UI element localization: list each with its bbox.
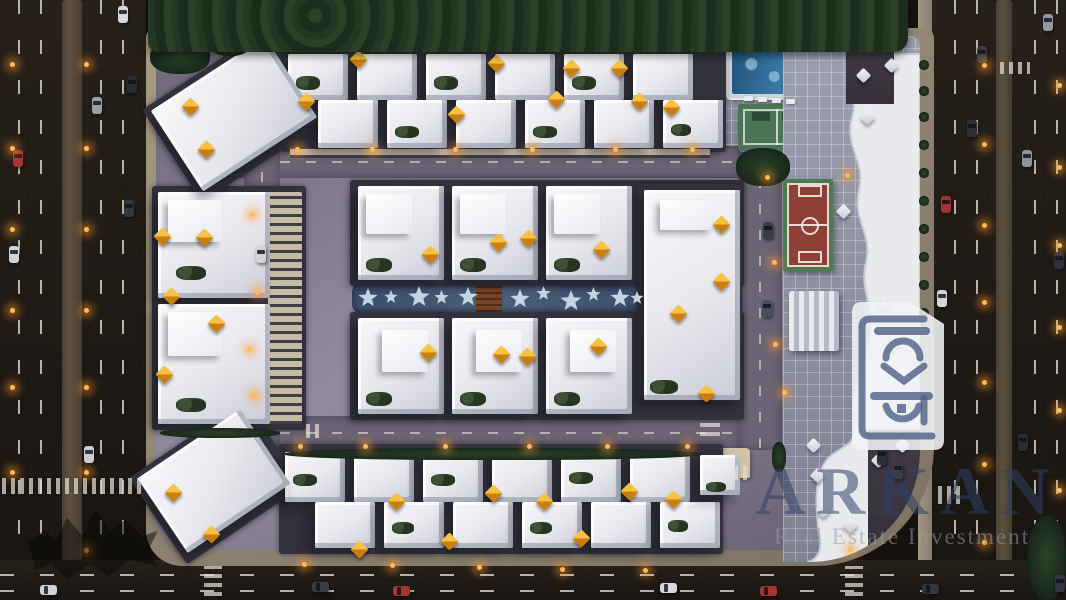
street-light [84, 470, 89, 475]
car-windshield [44, 586, 48, 594]
tree-bush [736, 148, 790, 186]
car [40, 585, 57, 595]
tennis-court [738, 104, 783, 150]
roof-garden [572, 76, 596, 90]
street-light [772, 260, 777, 265]
car [312, 582, 329, 592]
street-light [250, 212, 255, 217]
street-light [84, 308, 89, 313]
street-light [685, 444, 690, 449]
crosswalk [204, 566, 222, 596]
car-windshield [938, 294, 946, 298]
street-light [982, 223, 987, 228]
street-light [1057, 325, 1062, 330]
car-windshield [14, 154, 22, 158]
tree-bush [160, 428, 280, 438]
car-windshield [119, 10, 127, 14]
street-light [1057, 83, 1062, 88]
car-windshield [128, 80, 136, 84]
roof-garden [530, 522, 552, 534]
roof-garden [395, 126, 419, 138]
car-windshield [764, 226, 772, 230]
villa-roof-block [554, 194, 600, 234]
car-windshield [93, 101, 101, 105]
car-windshield [664, 584, 668, 592]
futsal-center-circle [801, 217, 819, 235]
street-light [255, 290, 260, 295]
roof-garden [366, 258, 392, 272]
masterplan-render: ARKAN Real Estate Investment [0, 0, 1066, 600]
car [763, 222, 773, 239]
street-light [252, 393, 257, 398]
street-light [1057, 243, 1062, 248]
roof-garden [554, 258, 580, 272]
car [127, 76, 137, 93]
street-light [453, 147, 458, 152]
street-light [690, 147, 695, 152]
road-median [62, 0, 82, 600]
lane-marking [100, 0, 102, 600]
tennis-mat [752, 112, 770, 121]
roof-garden [533, 126, 557, 138]
street-light [295, 147, 300, 152]
car-windshield [1019, 438, 1027, 442]
car [1054, 252, 1064, 269]
street-light [443, 444, 448, 449]
pool-lounger [744, 96, 753, 101]
street-light [363, 444, 368, 449]
street-light [527, 444, 532, 449]
watermark-brand: ARKAN [756, 452, 1060, 531]
street-light [643, 568, 648, 573]
street-light [560, 567, 565, 572]
lane-marking [228, 432, 740, 434]
roof-garden [671, 124, 691, 136]
car [92, 97, 102, 114]
street-light [530, 147, 535, 152]
villa-building [594, 100, 654, 148]
car [13, 150, 23, 167]
pool-lounger [786, 99, 795, 104]
villa-roof-block [660, 200, 712, 230]
street-light [782, 390, 787, 395]
roof-garden [706, 482, 726, 492]
pool-lounger [772, 98, 781, 103]
villa-building [453, 502, 513, 548]
tree-bush [919, 196, 929, 206]
roof-garden [392, 522, 414, 534]
street-light [982, 300, 987, 305]
crosswalk [734, 466, 752, 480]
car-windshield [968, 124, 976, 128]
villa-building [633, 54, 693, 100]
tree-bush [919, 86, 929, 96]
lane-marking [40, 0, 42, 600]
villa-building [591, 502, 651, 548]
car-windshield [397, 587, 401, 595]
car [660, 583, 677, 593]
futsal-court [783, 179, 833, 271]
car [256, 246, 266, 263]
street-light [477, 565, 482, 570]
street-light [10, 62, 15, 67]
car-windshield [316, 583, 320, 591]
swimming-pool [728, 44, 783, 98]
street-light [982, 142, 987, 147]
roof-garden [293, 474, 317, 486]
car [1018, 434, 1028, 451]
tree-bush [919, 224, 929, 234]
car-windshield [1055, 256, 1063, 260]
villa-roof-block [460, 194, 506, 234]
villa-building [456, 100, 516, 148]
car [977, 46, 987, 63]
street-light [765, 175, 770, 180]
street-light [1057, 165, 1062, 170]
crosswalk [845, 566, 863, 596]
car [1055, 575, 1065, 592]
pool-lounger [758, 97, 767, 102]
street-light [370, 147, 375, 152]
villa-building [315, 502, 375, 548]
car [762, 300, 772, 317]
street-light [390, 563, 395, 568]
street-light [10, 470, 15, 475]
roof-garden [431, 474, 455, 486]
villa-building [318, 100, 378, 148]
car-windshield [942, 200, 950, 204]
roof-garden [460, 392, 486, 406]
building-facade [268, 192, 302, 424]
pergola-seating [789, 291, 839, 351]
lane-marking [0, 574, 1066, 576]
car-windshield [1023, 154, 1031, 158]
tree-bush [919, 60, 929, 70]
crosswalk [306, 424, 324, 438]
street-light [10, 227, 15, 232]
road-left [0, 0, 146, 600]
roof-garden [460, 258, 486, 272]
tree-bush [919, 168, 929, 178]
street-light [84, 385, 89, 390]
street-light [982, 380, 987, 385]
street-light [773, 342, 778, 347]
street-light [247, 347, 252, 352]
crosswalk [2, 478, 144, 494]
tree-bush [919, 112, 929, 122]
street-light [10, 146, 15, 151]
crosswalk [700, 420, 720, 436]
street-light [1057, 408, 1062, 413]
roof-garden [176, 398, 206, 412]
car-windshield [764, 587, 768, 595]
tree-band-top [148, 0, 908, 52]
roof-garden [650, 380, 678, 394]
crosswalk [1000, 62, 1030, 74]
roof-garden [668, 520, 688, 532]
street-light [302, 562, 307, 567]
street-light [84, 146, 89, 151]
futsal-goal-box [798, 185, 822, 197]
car [124, 200, 134, 217]
roof-garden [296, 76, 320, 90]
villa-building [630, 452, 690, 502]
roof-garden [366, 392, 392, 406]
street-light [613, 147, 618, 152]
car-windshield [978, 50, 986, 54]
villa-roof-block [168, 200, 222, 242]
tree-bush [285, 448, 701, 460]
roof-garden [176, 266, 206, 280]
villa-building [426, 54, 486, 100]
internal-road-right [738, 152, 782, 450]
car [967, 120, 977, 137]
watermark-tagline: Real Estate Investment [774, 524, 1030, 550]
car [760, 586, 777, 596]
car [1022, 150, 1032, 167]
car [84, 446, 94, 463]
car [9, 246, 19, 263]
car-windshield [763, 304, 771, 308]
street-light [10, 308, 15, 313]
arkan-logo-emblem [850, 300, 946, 452]
car [941, 196, 951, 213]
car [1043, 14, 1053, 31]
street-light [84, 62, 89, 67]
street-light [605, 444, 610, 449]
lane-marking [18, 0, 20, 600]
tree-bush [919, 280, 929, 290]
car-windshield [10, 250, 18, 254]
villa-building [387, 100, 447, 148]
car-windshield [257, 250, 265, 254]
car-windshield [1056, 579, 1064, 583]
building-facade [290, 148, 710, 158]
street-light [298, 444, 303, 449]
car [393, 586, 410, 596]
street-light [10, 385, 15, 390]
tree-bush [919, 252, 929, 262]
roof-garden [554, 392, 580, 406]
tennis-net-line [776, 109, 778, 145]
car-windshield [125, 204, 133, 208]
villa-roof-block [366, 194, 412, 234]
roof-garden [569, 472, 593, 484]
street-light [845, 173, 850, 178]
lane-marking [0, 590, 1066, 592]
lane-marking [759, 152, 761, 450]
road-bottom [0, 560, 1066, 600]
pool-water [732, 48, 783, 94]
futsal-goal-box [798, 251, 822, 263]
car [922, 584, 939, 594]
car-windshield [85, 450, 93, 454]
roof-garden [434, 76, 458, 90]
car-windshield [1044, 18, 1052, 22]
car [118, 6, 128, 23]
car-windshield [926, 585, 930, 593]
street-light [84, 227, 89, 232]
street-light [982, 63, 987, 68]
tree-bush [919, 140, 929, 150]
lane-marking [122, 0, 124, 600]
lane-marking [228, 161, 740, 163]
